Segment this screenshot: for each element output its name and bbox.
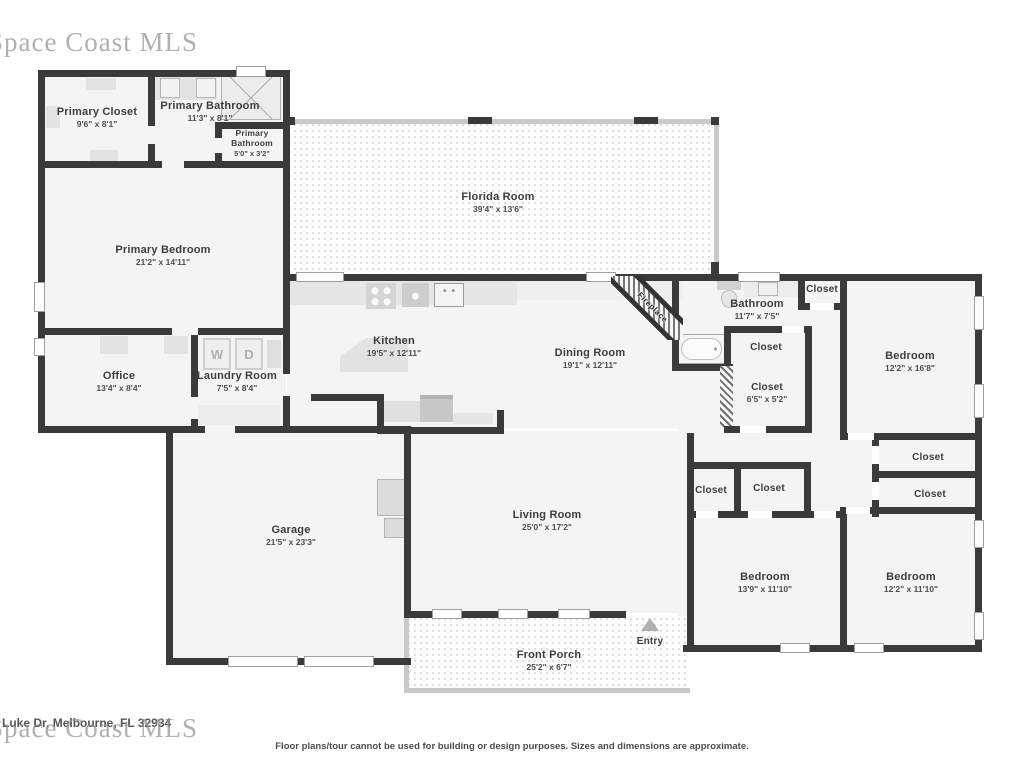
- room-dims: 39'4" x 13'6": [428, 205, 568, 215]
- kitchen-island: [383, 401, 420, 422]
- wall: [184, 161, 290, 168]
- washer: W: [203, 338, 231, 370]
- room-label-florida-room: Florida Room 39'4" x 13'6": [428, 191, 568, 214]
- wall: [804, 462, 811, 518]
- wall: [805, 326, 812, 433]
- fireplace-label: Fireplace: [636, 290, 670, 324]
- room-name: Primary Bedroom: [93, 244, 233, 257]
- room-label-primary-bedroom: Primary Bedroom 21'2" x 14'11": [93, 244, 233, 267]
- wall: [872, 471, 979, 478]
- room-name: Primary Bathroom: [222, 129, 282, 149]
- window: [738, 272, 780, 282]
- laundry-stoop: [198, 405, 280, 425]
- porch-edge: [404, 688, 690, 693]
- room-name: Bedroom: [840, 350, 980, 363]
- room-name: Closet: [727, 382, 807, 394]
- room-name: Closet: [734, 483, 804, 495]
- wall: [38, 161, 162, 168]
- room-dims: 21'5" x 23'3": [221, 538, 361, 548]
- wall: [711, 117, 719, 125]
- window: [296, 272, 344, 282]
- wall: [711, 262, 719, 278]
- room-name: Closet: [890, 489, 970, 501]
- wall: [283, 70, 290, 286]
- room-name: Closet: [782, 284, 862, 296]
- wall: [676, 274, 982, 281]
- door-opening: [696, 511, 718, 518]
- garage-door: [304, 656, 374, 667]
- cabinet: [164, 336, 188, 354]
- wall: [166, 426, 173, 665]
- window-wall: [714, 119, 719, 279]
- window: [498, 609, 528, 619]
- watermark-bottom: Space Coast MLS: [0, 713, 198, 744]
- window: [34, 282, 45, 312]
- door-opening: [740, 426, 766, 433]
- room-label-entry: Entry: [615, 636, 685, 648]
- entry-arrow-icon: [641, 618, 659, 631]
- room-name: Bedroom: [695, 571, 835, 584]
- room-label-closet-small: Closet 6'5" x 5'2": [727, 382, 807, 404]
- room-name: Primary Bathroom: [140, 100, 280, 113]
- dryer-label: D: [244, 347, 253, 362]
- fireplace-band: Fireplace: [611, 276, 683, 340]
- porch-edge: [404, 615, 409, 693]
- room-name: Bedroom: [841, 571, 981, 584]
- kitchen-island: [453, 413, 493, 424]
- room-dims: 25'0" x 17'2": [477, 523, 617, 533]
- bathtub-basin: [681, 338, 722, 360]
- room-label-primary-bathroom-small: Primary Bathroom 5'0" x 3'2": [222, 129, 282, 158]
- wall: [377, 427, 504, 434]
- room-dims: 7'5" x 8'4": [167, 384, 307, 394]
- room-dims: 11'7" x 7'5": [687, 312, 827, 322]
- door-opening: [846, 507, 870, 514]
- kitchen-island: [420, 395, 453, 422]
- wall: [283, 117, 295, 125]
- window: [974, 384, 984, 418]
- wall: [634, 117, 658, 124]
- watermark-top: Space Coast MLS: [0, 27, 198, 58]
- room-name: Closet: [888, 452, 968, 464]
- window: [432, 609, 462, 619]
- room-label-closet-b2: Closet: [734, 483, 804, 495]
- room-name: Front Porch: [479, 649, 619, 662]
- wall: [311, 394, 383, 401]
- utility-box: [267, 340, 281, 368]
- room-name: Entry: [615, 636, 685, 648]
- sink: [160, 78, 180, 98]
- room-label-primary-bathroom: Primary Bathroom 11'3" x 8'1": [140, 100, 280, 123]
- cabinet: [100, 336, 128, 354]
- room-label-kitchen: Kitchen 19'5" x 12'11": [324, 335, 464, 358]
- door-opening: [782, 326, 804, 333]
- dishwasher: [402, 283, 429, 307]
- door-opening: [748, 511, 772, 518]
- door-opening: [814, 511, 836, 518]
- wall: [687, 462, 811, 469]
- floor-plan: W D: [0, 0, 1024, 768]
- window: [780, 643, 810, 653]
- room-label-living-room: Living Room 25'0" x 17'2": [477, 509, 617, 532]
- washer-label: W: [211, 347, 223, 362]
- window: [974, 520, 984, 548]
- wall: [724, 426, 812, 433]
- room-label-laundry-room: Laundry Room 7'5" x 8'4": [167, 370, 307, 393]
- room-dims: 21'2" x 14'11": [93, 258, 233, 268]
- water-heater: [377, 479, 406, 516]
- wall: [872, 507, 982, 514]
- room-dims: 6'5" x 5'2": [727, 395, 807, 405]
- room-label-front-porch: Front Porch 25'2" x 6'7": [479, 649, 619, 672]
- window: [34, 338, 45, 356]
- room-dims: 13'9" x 11'10": [695, 585, 835, 595]
- room-dims: 25'2" x 6'7": [479, 663, 619, 673]
- door-opening: [872, 482, 879, 500]
- window: [854, 643, 884, 653]
- room-name: Kitchen: [324, 335, 464, 348]
- dryer: D: [235, 338, 263, 370]
- room-label-closet-mid: Closet: [726, 342, 806, 354]
- window: [236, 66, 266, 77]
- fireplace: Fireplace: [611, 276, 683, 340]
- room-label-bedroom-bottom-mid: Bedroom 13'9" x 11'10": [695, 571, 835, 594]
- wall: [497, 410, 504, 434]
- wall: [683, 645, 982, 652]
- room-label-dining-room: Dining Room 19'1" x 12'11": [520, 347, 660, 370]
- room-label-bathroom: Bathroom 11'7" x 7'5": [687, 298, 827, 321]
- utility-box: [384, 518, 406, 538]
- toilet: [717, 281, 741, 290]
- wall: [38, 328, 172, 335]
- closet-shelf: [90, 150, 118, 161]
- room-dims: 19'1" x 12'11": [520, 361, 660, 371]
- wall: [468, 117, 492, 124]
- wall: [38, 426, 205, 433]
- room-name: Dining Room: [520, 347, 660, 360]
- wall: [975, 274, 982, 652]
- wall: [215, 129, 222, 138]
- room-label-closet-hall-top: Closet: [782, 284, 862, 296]
- room-name: Garage: [221, 524, 361, 537]
- room-dims: 5'0" x 3'2": [222, 150, 282, 159]
- window: [558, 609, 590, 619]
- wall: [198, 328, 290, 335]
- room-name: Bathroom: [687, 298, 827, 311]
- garage-door: [228, 656, 298, 667]
- window: [974, 612, 984, 640]
- room-name: Living Room: [477, 509, 617, 522]
- room-name: Closet: [726, 342, 806, 354]
- closet-shelf: [86, 78, 116, 90]
- room-label-bedroom-right: Bedroom 12'2" x 16'8": [840, 350, 980, 373]
- room-dims: 19'5" x 12'11": [324, 349, 464, 359]
- room-dims: 11'3" x 8'1": [140, 114, 280, 124]
- kitchen-sink: [434, 283, 464, 307]
- door-opening: [872, 446, 879, 464]
- sink: [196, 78, 216, 98]
- room-dims: 12'2" x 16'8": [840, 364, 980, 374]
- room-label-closet-r1: Closet: [888, 452, 968, 464]
- room-label-garage: Garage 21'5" x 23'3": [221, 524, 361, 547]
- stove: [366, 283, 396, 309]
- sink: [758, 282, 778, 296]
- room-label-bedroom-bottom-right: Bedroom 12'2" x 11'10": [841, 571, 981, 594]
- room-name: Laundry Room: [167, 370, 307, 383]
- door-opening: [848, 433, 874, 440]
- window: [974, 296, 984, 330]
- room-label-closet-r2: Closet: [890, 489, 970, 501]
- room-dims: 12'2" x 11'10": [841, 585, 981, 595]
- wall: [404, 426, 411, 618]
- room-name: Florida Room: [428, 191, 568, 204]
- disclaimer-text: Floor plans/tour cannot be used for buil…: [0, 741, 1024, 752]
